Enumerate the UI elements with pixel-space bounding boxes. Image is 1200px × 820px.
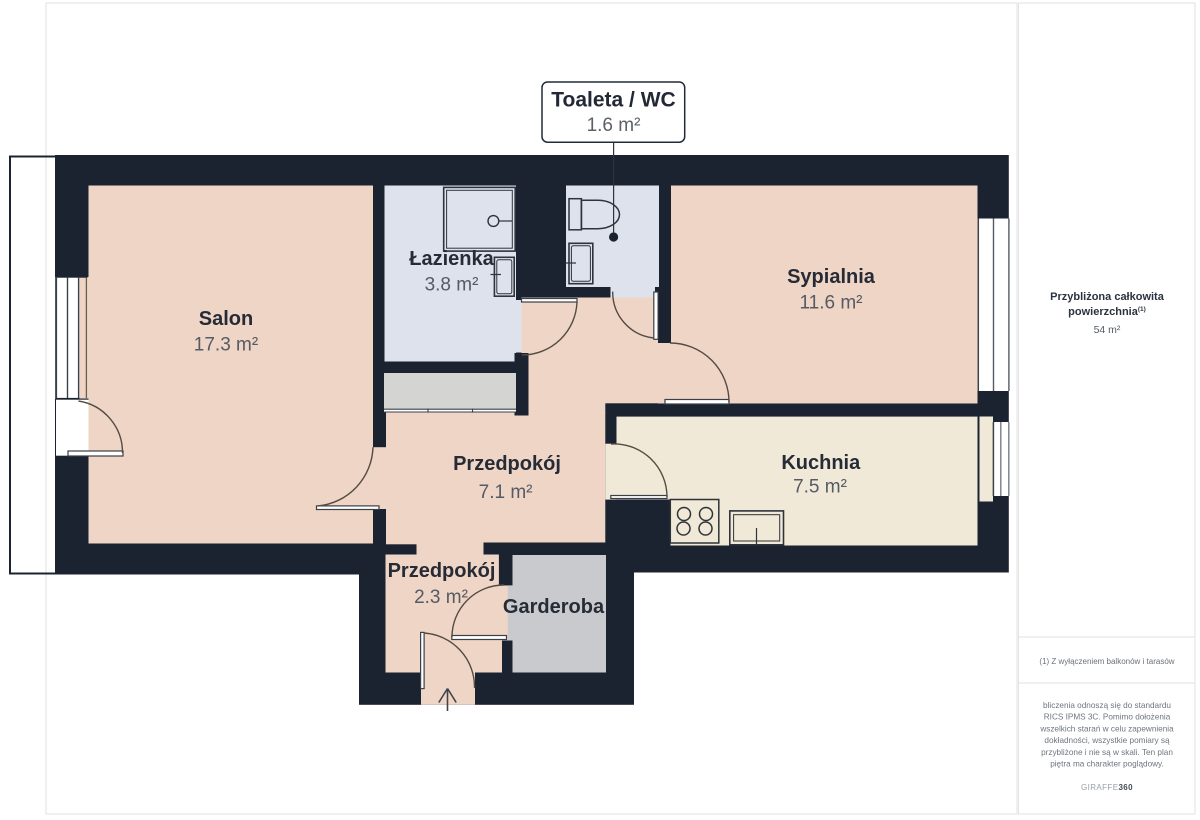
svg-text:Sypialnia: Sypialnia — [787, 266, 876, 288]
svg-text:GIRAFFE360: GIRAFFE360 — [1081, 783, 1133, 792]
svg-text:Garderoba: Garderoba — [503, 596, 605, 618]
svg-text:1.6 m²: 1.6 m² — [587, 115, 641, 136]
svg-text:Przedpokój: Przedpokój — [388, 560, 496, 582]
svg-text:11.6 m²: 11.6 m² — [799, 293, 862, 314]
svg-text:54 m²: 54 m² — [1094, 324, 1121, 336]
svg-text:piętra ma charakter poglądowy.: piętra ma charakter poglądowy. — [1050, 760, 1164, 769]
svg-text:RICS IPMS 3C. Pomimo dołożenia: RICS IPMS 3C. Pomimo dołożenia — [1044, 713, 1171, 722]
svg-text:17.3 m²: 17.3 m² — [194, 335, 258, 356]
svg-text:Łazienka: Łazienka — [409, 248, 494, 270]
svg-text:7.5 m²: 7.5 m² — [793, 477, 847, 498]
svg-text:Przedpokój: Przedpokój — [453, 453, 561, 475]
svg-text:(1) Z wyłączeniem balkonów i t: (1) Z wyłączeniem balkonów i tarasów — [1039, 657, 1174, 666]
svg-text:3.8 m²: 3.8 m² — [425, 275, 479, 296]
svg-text:wszelkich starań w celu zapewn: wszelkich starań w celu zapewnienia — [1039, 724, 1174, 733]
svg-text:2.3 m²: 2.3 m² — [414, 587, 468, 608]
svg-text:7.1 m²: 7.1 m² — [479, 482, 533, 503]
svg-text:Kuchnia: Kuchnia — [781, 452, 861, 474]
svg-text:przybliżone i nie są w skali.: przybliżone i nie są w skali. Ten plan — [1041, 748, 1173, 757]
svg-text:Salon: Salon — [199, 308, 253, 330]
svg-text:dokładności, wszystkie pomiary: dokładności, wszystkie pomiary są — [1044, 736, 1170, 745]
svg-text:powierzchnia(1): powierzchnia(1) — [1068, 306, 1146, 318]
svg-text:Toaleta / WC: Toaleta / WC — [551, 89, 675, 112]
svg-text:bliczenia odnoszą się do stand: bliczenia odnoszą się do standardu — [1043, 701, 1171, 710]
svg-text:Przybliżona całkowita: Przybliżona całkowita — [1050, 291, 1165, 303]
